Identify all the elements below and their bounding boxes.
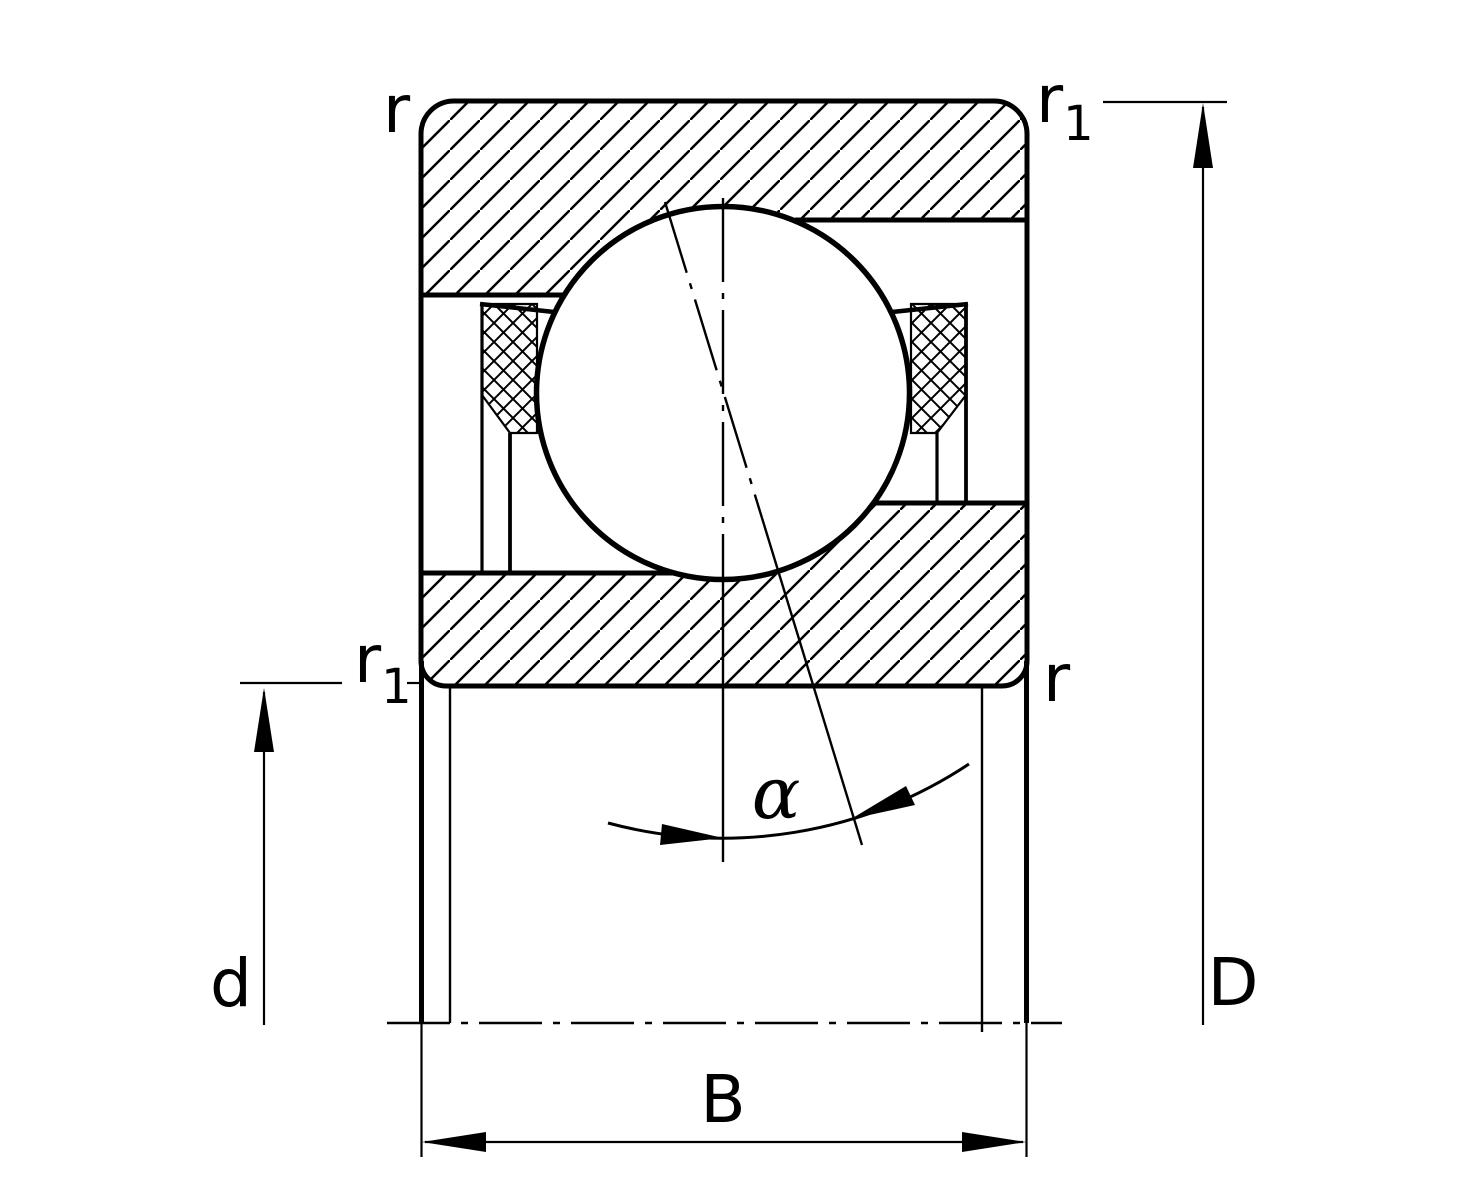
- label-outer-diameter: D: [1208, 944, 1259, 1021]
- diagram-canvas: r r1 r1 r d D B α: [0, 0, 1466, 1200]
- label-contact-angle: α: [752, 751, 801, 835]
- label-edge-radius-mid-right: r: [1043, 640, 1071, 717]
- label-width: B: [700, 1061, 745, 1138]
- bearing-cross-section-diagram: r r1 r1 r d D B α: [0, 0, 1466, 1200]
- label-bore-diameter: d: [210, 945, 252, 1022]
- label-edge-radius-top-left: r: [383, 71, 411, 148]
